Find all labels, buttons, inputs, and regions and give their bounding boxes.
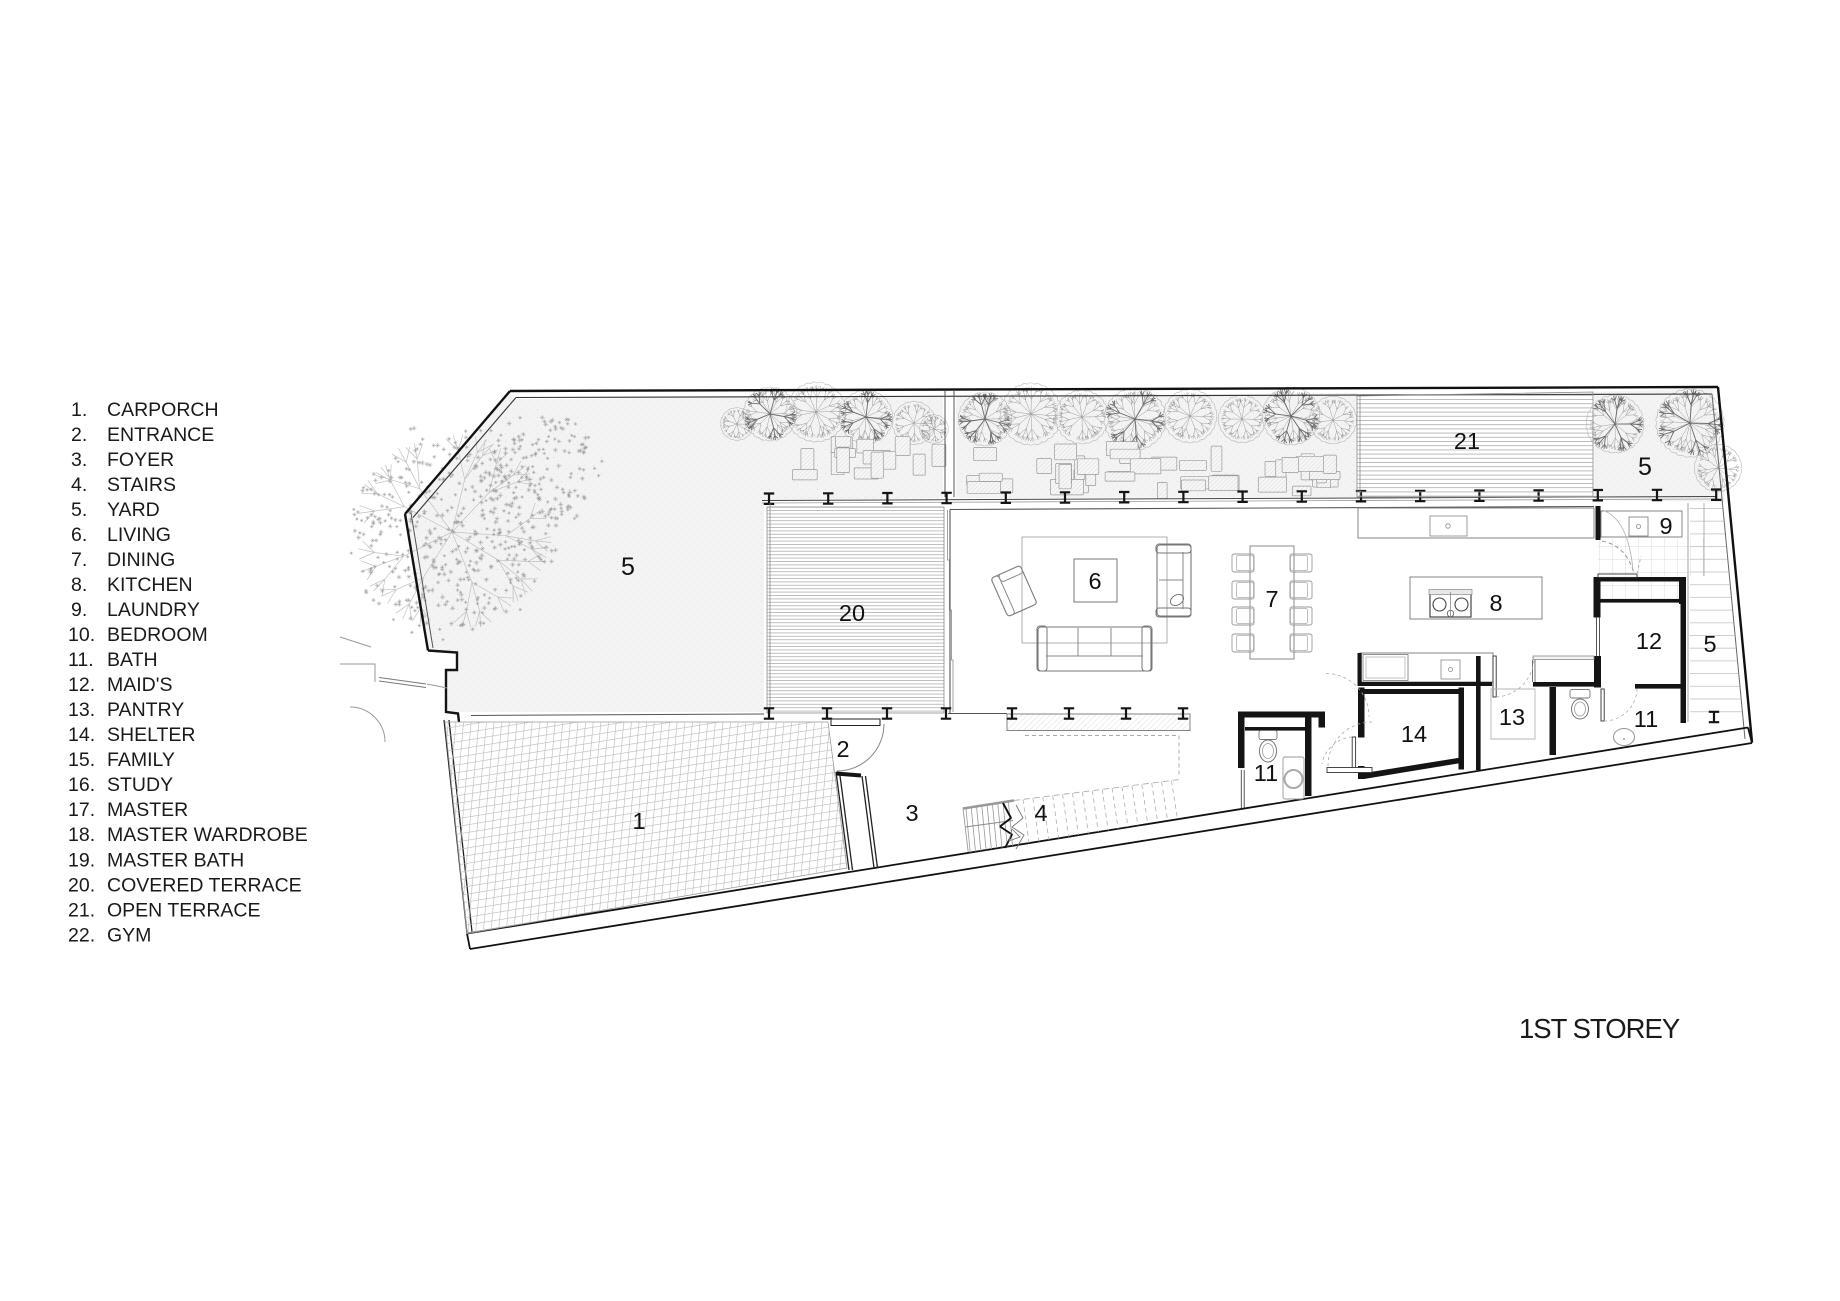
svg-text:9: 9 xyxy=(1659,513,1672,539)
svg-text:3: 3 xyxy=(905,800,918,826)
svg-text:MASTER BATH: MASTER BATH xyxy=(107,849,244,871)
svg-text:5: 5 xyxy=(1703,631,1716,657)
svg-text:13.: 13. xyxy=(68,699,95,721)
svg-text:21: 21 xyxy=(1454,428,1480,454)
svg-text:12: 12 xyxy=(1636,628,1662,654)
svg-text:1: 1 xyxy=(632,808,645,834)
svg-text:BATH: BATH xyxy=(107,649,158,671)
svg-text:FAMILY: FAMILY xyxy=(107,749,175,771)
svg-text:5: 5 xyxy=(621,553,635,581)
svg-text:22.: 22. xyxy=(68,924,95,946)
svg-text:13: 13 xyxy=(1499,704,1525,730)
svg-text:CARPORCH: CARPORCH xyxy=(107,399,219,421)
svg-text:MAID'S: MAID'S xyxy=(107,674,172,696)
svg-text:16.: 16. xyxy=(68,774,95,796)
svg-text:GYM: GYM xyxy=(107,924,151,946)
svg-text:11: 11 xyxy=(1254,760,1278,786)
svg-text:20.: 20. xyxy=(68,874,95,896)
svg-text:11.: 11. xyxy=(68,649,94,671)
svg-text:MASTER WARDROBE: MASTER WARDROBE xyxy=(107,824,308,846)
svg-text:FOYER: FOYER xyxy=(107,449,174,471)
svg-text:KITCHEN: KITCHEN xyxy=(107,574,193,596)
svg-text:7.: 7. xyxy=(71,549,87,571)
svg-text:18.: 18. xyxy=(68,824,95,846)
svg-text:OPEN TERRACE: OPEN TERRACE xyxy=(107,899,261,921)
svg-text:2: 2 xyxy=(836,736,849,762)
svg-text:STAIRS: STAIRS xyxy=(107,474,176,496)
svg-text:6.: 6. xyxy=(71,524,87,546)
svg-text:STUDY: STUDY xyxy=(107,774,173,796)
svg-text:4: 4 xyxy=(1034,800,1047,826)
svg-text:19.: 19. xyxy=(68,849,95,871)
svg-text:BEDROOM: BEDROOM xyxy=(107,624,208,646)
svg-text:6: 6 xyxy=(1088,568,1101,594)
svg-text:10.: 10. xyxy=(68,624,95,646)
svg-text:11: 11 xyxy=(1634,706,1658,732)
svg-text:1ST STOREY: 1ST STOREY xyxy=(1519,1013,1680,1044)
svg-text:PANTRY: PANTRY xyxy=(107,699,184,721)
svg-text:14.: 14. xyxy=(68,724,95,746)
svg-text:12.: 12. xyxy=(68,674,95,696)
svg-text:3.: 3. xyxy=(71,449,87,471)
svg-text:1.: 1. xyxy=(71,399,87,421)
svg-text:LAUNDRY: LAUNDRY xyxy=(107,599,200,621)
svg-text:4.: 4. xyxy=(71,474,87,496)
svg-text:2.: 2. xyxy=(71,424,87,446)
svg-text:17.: 17. xyxy=(68,799,95,821)
svg-text:15.: 15. xyxy=(68,749,95,771)
svg-text:SHELTER: SHELTER xyxy=(107,724,196,746)
svg-text:7: 7 xyxy=(1265,586,1278,612)
svg-text:LIVING: LIVING xyxy=(107,524,171,546)
svg-text:ENTRANCE: ENTRANCE xyxy=(107,424,214,446)
svg-text:20: 20 xyxy=(839,600,865,626)
svg-text:5.: 5. xyxy=(71,499,87,521)
svg-text:COVERED TERRACE: COVERED TERRACE xyxy=(107,874,302,896)
svg-text:21.: 21. xyxy=(68,899,95,921)
svg-text:8.: 8. xyxy=(71,574,87,596)
svg-text:MASTER: MASTER xyxy=(107,799,188,821)
svg-text:14: 14 xyxy=(1401,721,1427,747)
svg-text:8: 8 xyxy=(1489,590,1502,616)
svg-text:9.: 9. xyxy=(71,599,87,621)
svg-text:5: 5 xyxy=(1638,453,1652,481)
svg-text:YARD: YARD xyxy=(107,499,160,521)
svg-text:DINING: DINING xyxy=(107,549,175,571)
